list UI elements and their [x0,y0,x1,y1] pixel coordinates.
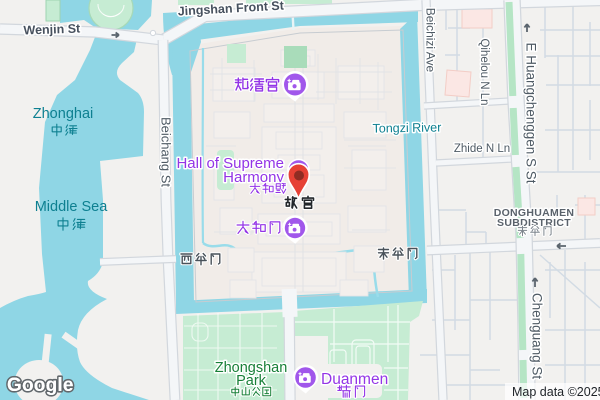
svg-text:Middle Sea: Middle Sea [35,199,108,215]
svg-text:Google: Google [7,375,74,396]
svg-text:Wenjin St: Wenjin St [23,21,81,37]
svg-text:Chenguang St: Chenguang St [530,293,545,380]
svg-text:Zhonghai: Zhonghai [33,106,93,122]
svg-text:Zhide N Ln: Zhide N Ln [454,143,510,155]
svg-text:Beichang St: Beichang St [159,117,174,187]
svg-text:Qihelou N Ln: Qihelou N Ln [478,38,490,105]
svg-text:E Huangchenggen S St: E Huangchenggen S St [524,42,539,183]
svg-text:Map data ©2025: Map data ©2025 [512,385,600,399]
svg-text:Tongzi River: Tongzi River [372,120,441,135]
svg-text:Beichizi Ave: Beichizi Ave [424,8,438,73]
